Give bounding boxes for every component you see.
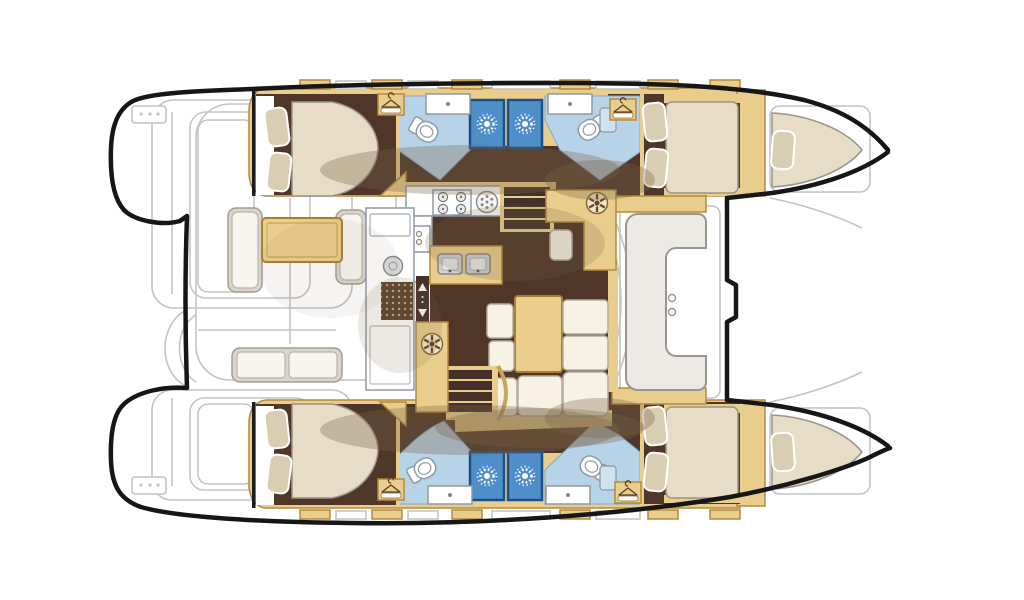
pillow: [266, 454, 292, 494]
pillow: [266, 152, 292, 192]
wardrobe-hanger-icon: [378, 93, 404, 115]
pillow: [642, 102, 668, 142]
bench-cushion: [237, 352, 285, 378]
floorplan-svg: [0, 0, 1024, 600]
stair-tread: [448, 381, 492, 390]
stair-tread: [448, 392, 492, 401]
faucet-dot: [448, 493, 452, 497]
bench-cushion: [232, 212, 258, 288]
cabin-bulkhead-line: [252, 88, 256, 196]
catamaran-floorplan-image: [0, 0, 1024, 600]
port-bow-bulkhead: [737, 90, 765, 196]
faucet-dot: [568, 102, 572, 106]
starboard-forepeak-berth: [770, 408, 870, 494]
wardrobe-hanger-icon: [610, 98, 636, 120]
forepeak-pillow: [771, 130, 796, 169]
double-berth-mattress: [666, 407, 738, 498]
faucet-dot: [446, 102, 450, 106]
pillow: [643, 452, 669, 492]
double-berth-mattress: [666, 102, 738, 193]
faucet-dot: [566, 493, 570, 497]
bench-cushion: [289, 352, 337, 378]
salon-side-wall: [608, 268, 618, 392]
sofa-cushion: [563, 300, 608, 334]
cabin-bulkhead-line: [252, 402, 256, 508]
wardrobe-hanger-icon: [615, 481, 641, 503]
sofa-cushion: [563, 336, 608, 370]
side-walkway-top: [612, 196, 706, 212]
cockpit-aft-bench: [232, 348, 342, 382]
sofa-seat: [487, 304, 513, 338]
forepeak-pillow: [771, 432, 796, 471]
pillow: [264, 107, 290, 147]
cabin-washbasin: [600, 466, 616, 490]
stair-tread: [448, 370, 492, 379]
pillow: [264, 409, 290, 449]
wardrobe-hanger-icon: [378, 478, 404, 500]
salon-table: [515, 296, 562, 372]
